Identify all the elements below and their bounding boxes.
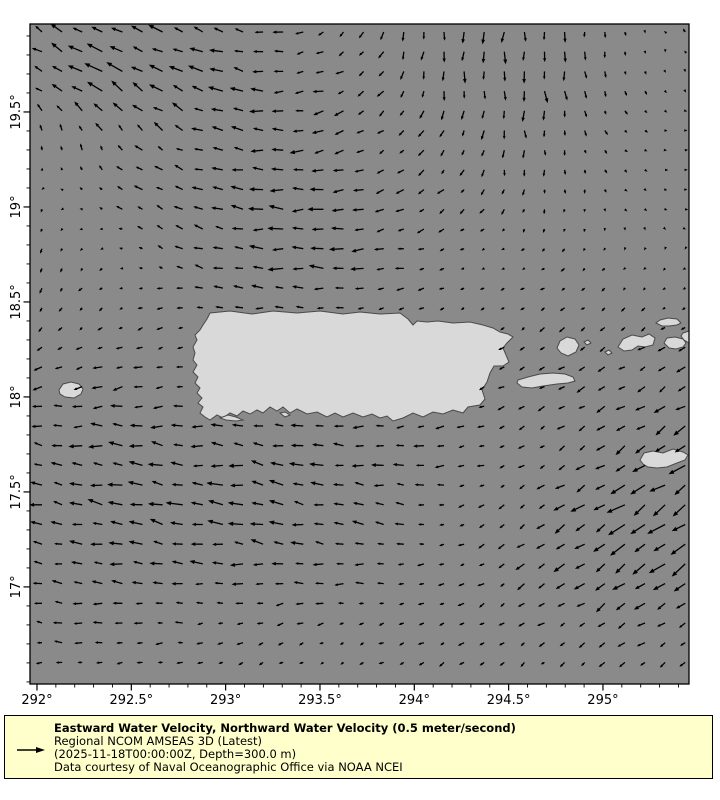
y-tick-label: 17.5° xyxy=(9,474,24,509)
land-puerto-rico xyxy=(193,311,513,421)
y-tick-label: 19° xyxy=(9,195,24,218)
x-tick-label: 293° xyxy=(210,693,241,708)
legend-timestamp: (2025-11-18T00:00:00Z, Depth=300.0 m) xyxy=(54,748,516,761)
x-tick-label: 292.5° xyxy=(109,693,153,708)
x-tick-label: 294° xyxy=(399,693,430,708)
y-tick-label: 18° xyxy=(9,385,24,408)
x-tick-label: 294.5° xyxy=(487,693,531,708)
ocean-current-figure: 292°292.5°293°293.5°294°294.5°295°17°17.… xyxy=(0,0,720,800)
legend-title: Eastward Water Velocity, Northward Water… xyxy=(54,722,516,735)
x-tick-label: 295° xyxy=(587,693,618,708)
y-tick-label: 19.5° xyxy=(9,94,24,129)
legend-text-block: Eastward Water Velocity, Northward Water… xyxy=(54,722,516,774)
legend-subtitle: Regional NCOM AMSEAS 3D (Latest) xyxy=(54,735,516,748)
y-tick-label: 17° xyxy=(9,575,24,598)
legend: Eastward Water Velocity, Northward Water… xyxy=(4,715,713,779)
y-tick-label: 18.5° xyxy=(9,284,24,319)
x-tick-label: 292° xyxy=(21,693,52,708)
legend-credit: Data courtesy of Naval Oceanographic Off… xyxy=(54,761,516,774)
quiver-key-arrow-icon xyxy=(15,742,51,758)
velocity-quiver-map: 292°292.5°293°293.5°294°294.5°295°17°17.… xyxy=(0,0,720,800)
x-tick-label: 293.5° xyxy=(298,693,342,708)
